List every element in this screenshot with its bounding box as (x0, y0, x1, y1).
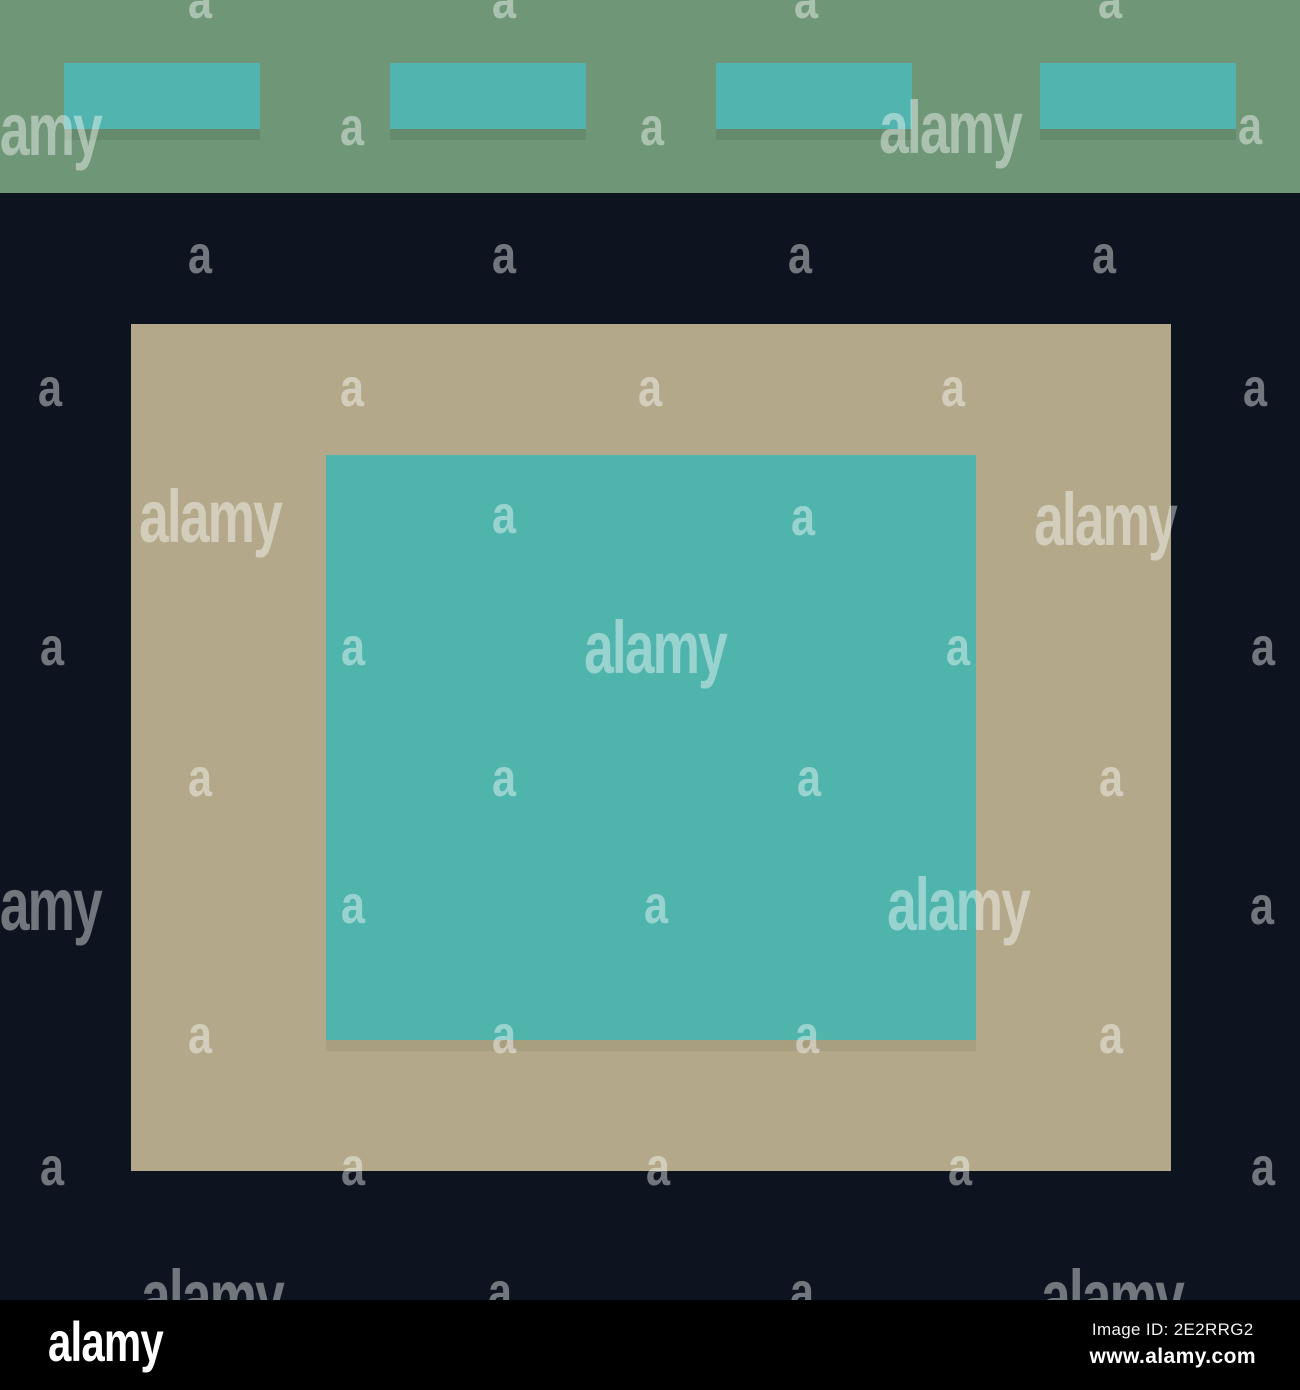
alamy-watermark-letter: a (1251, 620, 1275, 674)
image-id-text: Image ID: 2E2RRG2 (1092, 1320, 1254, 1340)
alamy-watermark-letter: a (788, 228, 812, 282)
alamy-watermark-letter: a (40, 620, 64, 674)
alamy-url-text: www.alamy.com (1089, 1345, 1256, 1369)
illustration-inner-square (326, 455, 976, 1040)
alamy-watermark-word: alamy (0, 868, 101, 942)
alamy-watermark-letter: a (38, 361, 62, 415)
illustration-header-bar (0, 0, 1300, 193)
alamy-logo: alamy (48, 1314, 163, 1370)
footer-meta: Image ID: 2E2RRG2 www.alamy.com (1089, 1320, 1256, 1369)
nav-button-shape-4 (1040, 63, 1236, 129)
stock-image-canvas: alamyalamyalamyalamyalamyalamyalamyalamy… (0, 0, 1300, 1390)
illustration-content-panel (131, 324, 1171, 1171)
footer-bar: alamy Image ID: 2E2RRG2 www.alamy.com (0, 1300, 1300, 1390)
alamy-watermark-letter: a (1243, 361, 1267, 415)
alamy-watermark-letter: a (492, 228, 516, 282)
alamy-watermark-letter: a (188, 228, 212, 282)
alamy-watermark-letter: a (1250, 879, 1274, 933)
alamy-watermark-letter: a (40, 1140, 64, 1194)
nav-button-shape-1 (64, 63, 260, 129)
nav-button-shape-3 (716, 63, 912, 129)
alamy-watermark-letter: a (1092, 228, 1116, 282)
nav-button-shape-2 (390, 63, 586, 129)
alamy-watermark-letter: a (1251, 1140, 1275, 1194)
